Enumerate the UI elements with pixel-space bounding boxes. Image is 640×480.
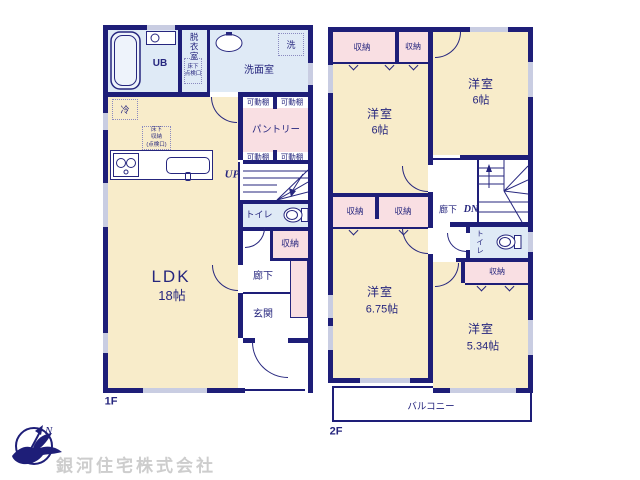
label-floor2: 2F xyxy=(330,425,343,438)
door-arc xyxy=(252,342,288,378)
bathtub-icon xyxy=(110,31,141,90)
window-marker xyxy=(328,326,333,350)
wall xyxy=(428,32,433,165)
wall xyxy=(108,92,210,97)
label-ub: UB xyxy=(153,58,167,70)
toilet-icon xyxy=(496,231,522,253)
wall xyxy=(456,258,533,262)
door-arc xyxy=(447,233,466,252)
label-pantry: パントリー xyxy=(252,124,300,135)
label-ldk-size: 18帖 xyxy=(158,288,185,304)
hall-line xyxy=(433,158,462,160)
label-room-ne-size: 6帖 xyxy=(472,94,489,107)
wall xyxy=(466,250,470,258)
washbasin-icon xyxy=(214,32,244,53)
window-marker xyxy=(103,183,108,227)
window-marker xyxy=(528,232,533,252)
label-room-ne: 洋室 xyxy=(468,77,494,91)
stairs-up xyxy=(243,164,308,200)
underfloor-hatch-label: 床下 点検口 xyxy=(185,64,202,78)
window-marker xyxy=(308,63,313,85)
room-ldk xyxy=(108,97,238,388)
wall xyxy=(178,30,182,92)
hall-entrance-divider xyxy=(243,292,290,294)
window-marker xyxy=(103,113,108,130)
window-marker xyxy=(528,320,533,355)
stairs-down xyxy=(478,160,528,222)
wall xyxy=(273,95,277,109)
label-storage-nw-left: 収納 xyxy=(353,42,370,52)
window-marker xyxy=(147,25,175,30)
label-storage-mid-right: 収納 xyxy=(394,206,411,216)
label-shelf-1: 可動棚 xyxy=(247,98,270,107)
label-storage-mid-left: 収納 xyxy=(346,206,363,216)
wall xyxy=(288,338,308,343)
window-marker xyxy=(103,333,108,353)
closet-line xyxy=(465,283,528,285)
label-room-sw-size: 6.75帖 xyxy=(366,303,398,316)
kitchen-counter xyxy=(110,150,213,180)
washer-label: 洗 xyxy=(286,38,295,51)
porch-edge-line xyxy=(243,389,305,391)
underfloor-storage-label: 床下 収納 (点検口) xyxy=(146,127,166,148)
label-storage-nw-right: 収納 xyxy=(405,42,421,52)
window-marker xyxy=(528,62,533,97)
stove-icon xyxy=(113,153,139,177)
wall xyxy=(450,222,533,227)
faucet-icon xyxy=(185,172,191,181)
wall xyxy=(270,258,310,261)
underfloor-storage: 床下 収納 (点検口) xyxy=(142,126,171,150)
wall xyxy=(333,193,428,197)
window-marker xyxy=(450,388,516,393)
door-arc xyxy=(245,228,265,248)
wall xyxy=(395,32,399,62)
window-marker xyxy=(360,378,410,383)
vanity-counter-icon xyxy=(146,31,176,46)
wall xyxy=(466,227,470,233)
label-room-sw: 洋室 xyxy=(367,285,393,299)
wall xyxy=(238,293,243,338)
wall xyxy=(238,200,243,265)
floorplan-canvas: 洗 冷 床下 点検口 床下 収納 (点検口) UB 脱衣室 洗面室 可動棚 可動… xyxy=(0,0,640,480)
label-entrance: 玄関 xyxy=(253,309,273,321)
label-hallway-2f: 廊下 xyxy=(439,205,457,216)
window-marker xyxy=(328,65,333,93)
label-room-nw: 洋室 xyxy=(367,107,393,121)
label-storage-east: 収納 xyxy=(489,267,505,277)
label-floor1: 1F xyxy=(105,395,118,408)
label-storage-1f: 収納 xyxy=(281,239,299,250)
label-balcony: バルコニー xyxy=(407,401,454,412)
wall xyxy=(461,262,465,283)
wall xyxy=(243,200,308,204)
label-room-nw-size: 6帖 xyxy=(371,124,388,137)
underfloor-hatch: 床下 点検口 xyxy=(184,58,202,84)
label-toilet-2f: トイレ xyxy=(476,229,485,255)
washer-space: 洗 xyxy=(278,33,304,56)
label-stairs-up: UP xyxy=(225,168,240,181)
label-shelf-3: 可動棚 xyxy=(247,153,270,162)
label-shelf-4: 可動棚 xyxy=(281,153,304,162)
window-marker xyxy=(143,388,207,393)
label-dressing-room: 脱衣室 xyxy=(189,33,199,62)
window-marker xyxy=(470,27,508,32)
label-hallway-1f: 廊下 xyxy=(253,271,273,283)
fridge-label: 冷 xyxy=(120,103,129,116)
label-shelf-2: 可動棚 xyxy=(281,98,304,107)
label-toilet-1f: トイレ xyxy=(245,210,272,221)
label-room-se-size: 5.34帖 xyxy=(467,340,499,353)
wall xyxy=(207,30,210,92)
fridge-space: 冷 xyxy=(112,99,138,120)
wall xyxy=(270,231,273,258)
label-room-se: 洋室 xyxy=(468,322,494,336)
company-watermark: 銀河住宅株式会社 xyxy=(56,452,216,477)
wall xyxy=(238,97,243,160)
label-ldk: LDK xyxy=(151,267,190,287)
wall xyxy=(428,254,433,378)
wall xyxy=(375,197,379,219)
label-washroom: 洗面室 xyxy=(244,65,274,77)
toilet-icon xyxy=(283,205,309,225)
shoe-closet xyxy=(290,260,308,318)
wall xyxy=(428,192,433,228)
label-stairs-down: DN xyxy=(464,204,478,216)
window-marker xyxy=(328,295,333,318)
